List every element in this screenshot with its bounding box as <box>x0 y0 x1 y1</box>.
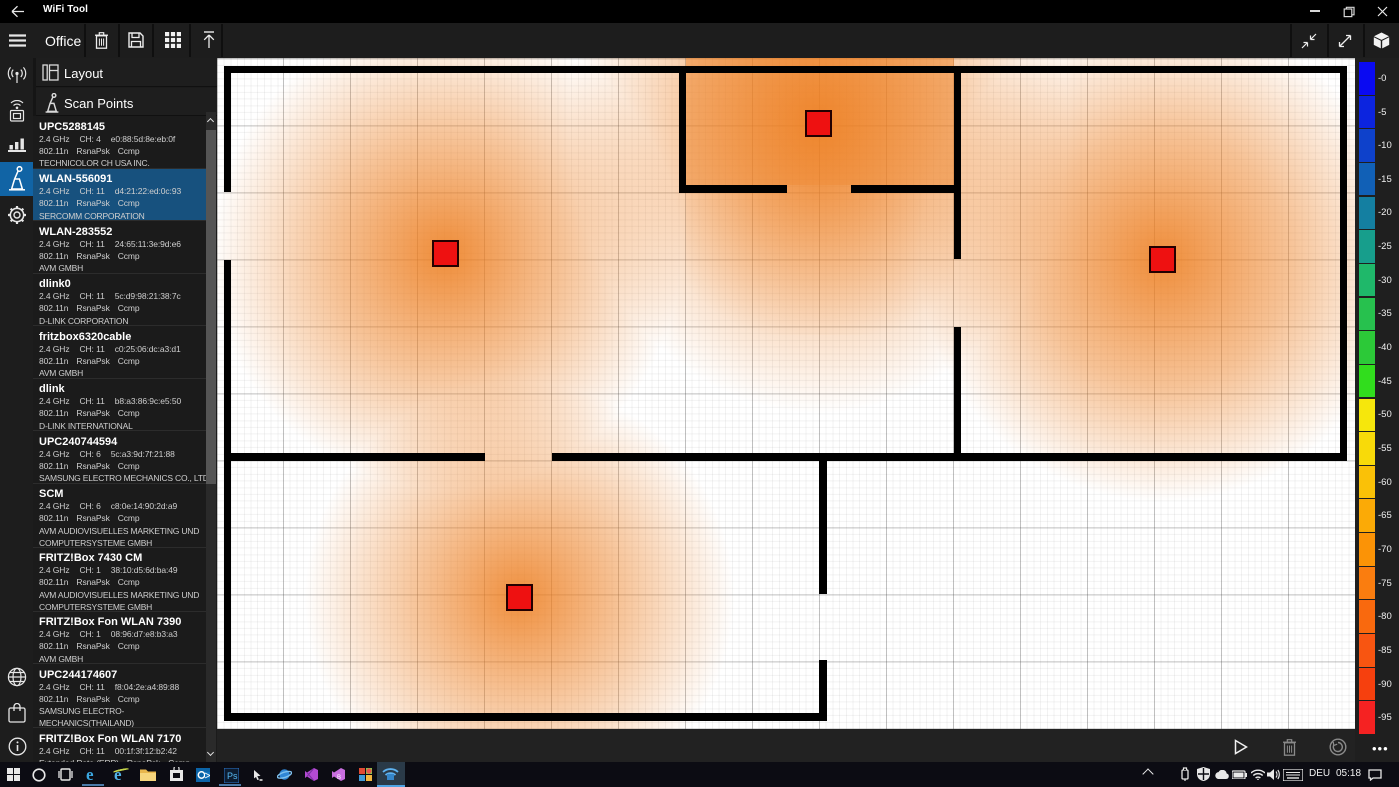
svg-text:Ps: Ps <box>227 771 238 781</box>
svg-text:B: B <box>337 775 341 781</box>
